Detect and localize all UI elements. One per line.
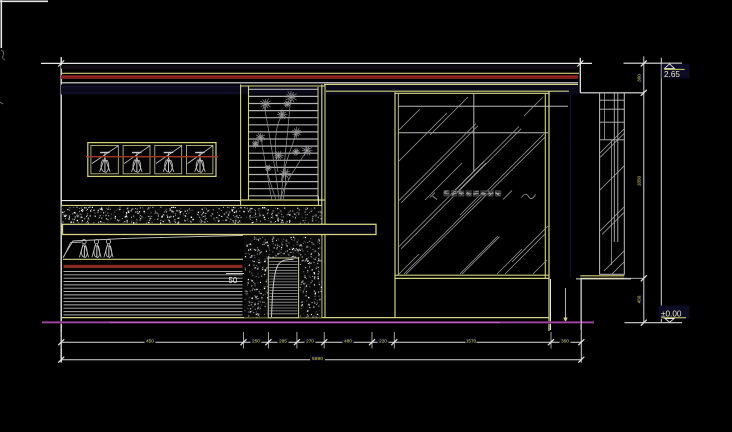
svg-text:285: 285 [279,338,287,343]
svg-text:50: 50 [229,276,238,285]
svg-text:480: 480 [344,338,352,343]
svg-text:220: 220 [379,338,387,343]
svg-text:2.65: 2.65 [664,70,680,79]
svg-text:270: 270 [306,338,314,343]
svg-text:300: 300 [637,74,642,82]
svg-text:1850: 1850 [637,175,642,186]
svg-text:±0.00: ±0.00 [661,309,682,318]
svg-text:5690: 5690 [312,356,323,362]
svg-text:450: 450 [146,338,154,343]
svg-text:1570: 1570 [466,338,477,343]
svg-text:300: 300 [561,338,569,343]
svg-text:250: 250 [252,338,260,343]
svg-text:450: 450 [637,295,642,303]
